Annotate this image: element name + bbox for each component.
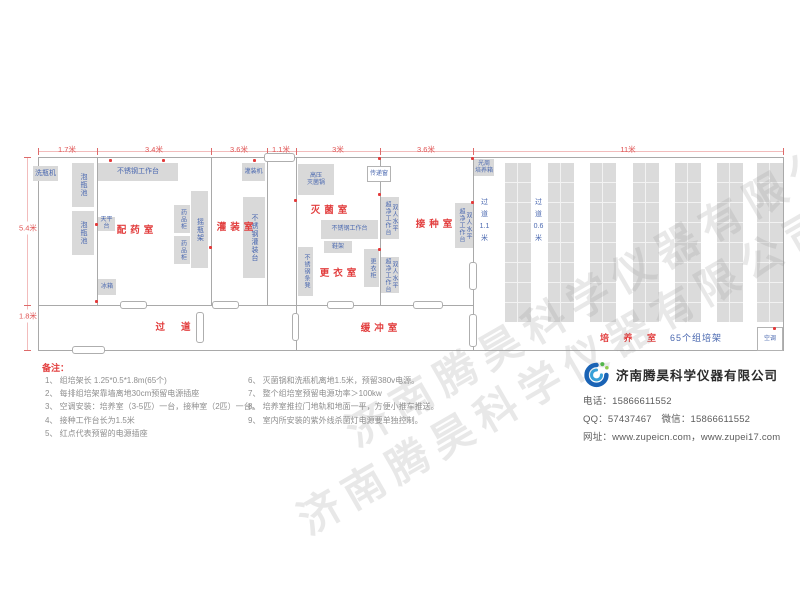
- dimension-tick: [783, 148, 784, 155]
- aisle-label: 过 道 0.6 米: [532, 197, 545, 249]
- power-outlet-dot: [378, 193, 381, 196]
- equip-fridge: 冰箱: [98, 279, 116, 295]
- dimension-label: 3.6米: [230, 144, 248, 155]
- power-outlet-dot: [95, 223, 98, 226]
- door-or-window: [212, 301, 239, 309]
- dimension-label: 3米: [332, 144, 344, 155]
- dimension-label: 11米: [620, 144, 635, 155]
- equip-balance-table: 天平台: [98, 217, 115, 231]
- company-name: 济南腾昊科学仪器有限公司: [616, 365, 778, 384]
- note-item: 5、 红点代表预留的电源插座: [45, 427, 250, 440]
- door-or-window: [264, 153, 295, 162]
- floor-plan: 洗瓶机泡瓶池泡瓶池不锈钢工作台灌装机天平台药品柜药品柜摇瓶架冰箱不锈钢灌装台高压…: [0, 0, 800, 600]
- company-info: 济南腾昊科学仪器有限公司 电话：15866611552 QQ：57437467 …: [583, 360, 788, 443]
- room-label-buffer: 缓冲室: [361, 320, 402, 334]
- room-label-changing: 更衣室: [320, 265, 361, 279]
- note-item: 3、 空调安装：培养室（3-5匹）一台，接种室（2匹）一台。: [45, 400, 250, 413]
- equip-autoclave: 高压 灭菌锅: [298, 164, 334, 195]
- culture-rack-column: [590, 163, 616, 322]
- dimension-tick: [38, 148, 39, 155]
- dimension-label: 5.4米: [18, 222, 38, 235]
- culture-rack-column: [717, 163, 743, 322]
- culture-room-rack-count: 65个组培架: [670, 333, 722, 343]
- power-outlet-dot: [294, 199, 297, 202]
- note-item: 1、 组培架长 1.25*0.5*1.8m(65个): [45, 374, 250, 387]
- note-item: 7、 整个组培室预留电源功率＞100kw: [248, 387, 463, 400]
- room-label-corridor: 过道: [155, 319, 206, 333]
- culture-rack-column: [675, 163, 701, 322]
- note-item: 2、 每排组培架靠墙离地30cm预留电源插座: [45, 387, 250, 400]
- equip-medicine-cabinet-2: 药品柜: [174, 236, 190, 264]
- wall: [38, 157, 784, 158]
- wall: [783, 157, 784, 351]
- culture-rack-column: [548, 163, 574, 322]
- equip-ss-filling-table: 不锈钢灌装台: [243, 197, 265, 278]
- door-or-window: [292, 313, 299, 341]
- wall: [211, 157, 212, 306]
- dimension-tick: [24, 157, 31, 158]
- equip-air-conditioner: 空调: [757, 327, 783, 351]
- company-phone: 电话：15866611552: [583, 393, 788, 407]
- note-item: 4、 接种工作台长为1.5米: [45, 414, 250, 427]
- notes-column-1: 1、 组培架长 1.25*0.5*1.8m(65个)2、 每排组培架靠墙离地30…: [45, 374, 250, 440]
- equip-locker: 更衣柜: [364, 249, 379, 287]
- equip-bottle-washer: 洗瓶机: [33, 166, 58, 181]
- page: 洗瓶机泡瓶池泡瓶池不锈钢工作台灌装机天平台药品柜药品柜摇瓶架冰箱不锈钢灌装台高压…: [0, 0, 800, 600]
- dimension-label: 1.7米: [58, 144, 76, 155]
- dimension-tick: [380, 148, 381, 155]
- note-item: 9、 室内所安装的紫外线杀菌灯电源要单独控制。: [248, 414, 463, 427]
- equip-photoperiod-incubator: 光周 培养箱: [474, 159, 494, 176]
- dimension-label: 3.4米: [145, 144, 163, 155]
- door-or-window: [72, 346, 105, 354]
- company-website: 网址：www.zupeicn.com，www.zupei17.com: [583, 429, 788, 443]
- room-label-sterilization: 灭菌室: [311, 202, 352, 216]
- room-label-filling: 灌装室: [217, 219, 258, 233]
- dimension-tick: [97, 148, 98, 155]
- room-label-dispensing: 配药室: [117, 222, 158, 236]
- equip-ss-bench: 不锈钢条凳: [298, 247, 313, 296]
- power-outlet-dot: [253, 159, 256, 162]
- culture-rack-column: [505, 163, 531, 322]
- note-item: 6、 灭菌锅和洗瓶机离地1.5米，预留380v电源。: [248, 374, 463, 387]
- company-qq-wechat: QQ：57437467 微信：15866611552: [583, 411, 788, 425]
- company-header: 济南腾昊科学仪器有限公司: [583, 360, 788, 389]
- dimension-label: 1.8米: [18, 310, 38, 323]
- dimension-label: 3.6米: [417, 144, 435, 155]
- wall: [38, 305, 474, 306]
- dimension-tick: [473, 148, 474, 155]
- equip-ss-workbench-b: 不锈钢工作台: [321, 220, 378, 239]
- equip-pass-window: 传递窗: [367, 166, 391, 182]
- door-or-window: [469, 314, 477, 347]
- door-or-window: [120, 301, 147, 309]
- dimension-tick: [24, 305, 31, 306]
- room-label-culture: 培 养 室65个组培架: [600, 331, 722, 344]
- room-label-inoculation: 接种室: [416, 216, 457, 230]
- door-or-window: [327, 301, 354, 309]
- dimension-tick: [296, 148, 297, 155]
- culture-rack-column: [757, 163, 783, 322]
- power-outlet-dot: [109, 159, 112, 162]
- wall: [38, 157, 39, 351]
- notes-column-2: 6、 灭菌锅和洗瓶机离地1.5米，预留380v电源。7、 整个组培室预留电源功率…: [248, 374, 463, 427]
- power-outlet-dot: [773, 327, 776, 330]
- aisle-label: 过 道 1.1 米: [478, 197, 491, 249]
- company-logo: [583, 360, 610, 389]
- culture-rack-column: [633, 163, 659, 322]
- equip-medicine-cabinet-1: 药品柜: [174, 205, 190, 233]
- equip-ss-workbench-a: 不锈钢工作台: [98, 163, 178, 181]
- equip-clean-bench-1: 双人水平 超净工作台: [381, 197, 399, 239]
- power-outlet-dot: [471, 201, 474, 204]
- equip-soak-pool-2: 泡瓶池: [72, 211, 94, 255]
- dimension-tick: [211, 148, 212, 155]
- equip-shake-flask-rack: 摇瓶架: [191, 191, 208, 268]
- wall: [38, 350, 784, 351]
- note-item: 8、 培养室推拉门地轨和地面一平，方便小推车推送。: [248, 400, 463, 413]
- wall: [267, 157, 268, 306]
- dimension-tick: [24, 350, 31, 351]
- equip-clean-bench-2: 双人水平 超净工作台: [381, 257, 399, 293]
- equip-clean-bench-3: 双人水平 超净工作台: [455, 203, 473, 248]
- power-outlet-dot: [95, 300, 98, 303]
- notes-title: 备注：: [42, 361, 69, 374]
- door-or-window: [413, 301, 443, 309]
- door-or-window: [469, 262, 477, 290]
- power-outlet-dot: [162, 159, 165, 162]
- equip-soak-pool-1: 泡瓶池: [72, 163, 94, 207]
- equip-filling-machine: 灌装机: [242, 163, 265, 181]
- culture-room-name: 培 养 室: [600, 333, 662, 343]
- power-outlet-dot: [378, 157, 381, 160]
- power-outlet-dot: [471, 157, 474, 160]
- power-outlet-dot: [209, 246, 212, 249]
- equip-shoe-rack: 鞋架: [324, 241, 352, 253]
- power-outlet-dot: [378, 248, 381, 251]
